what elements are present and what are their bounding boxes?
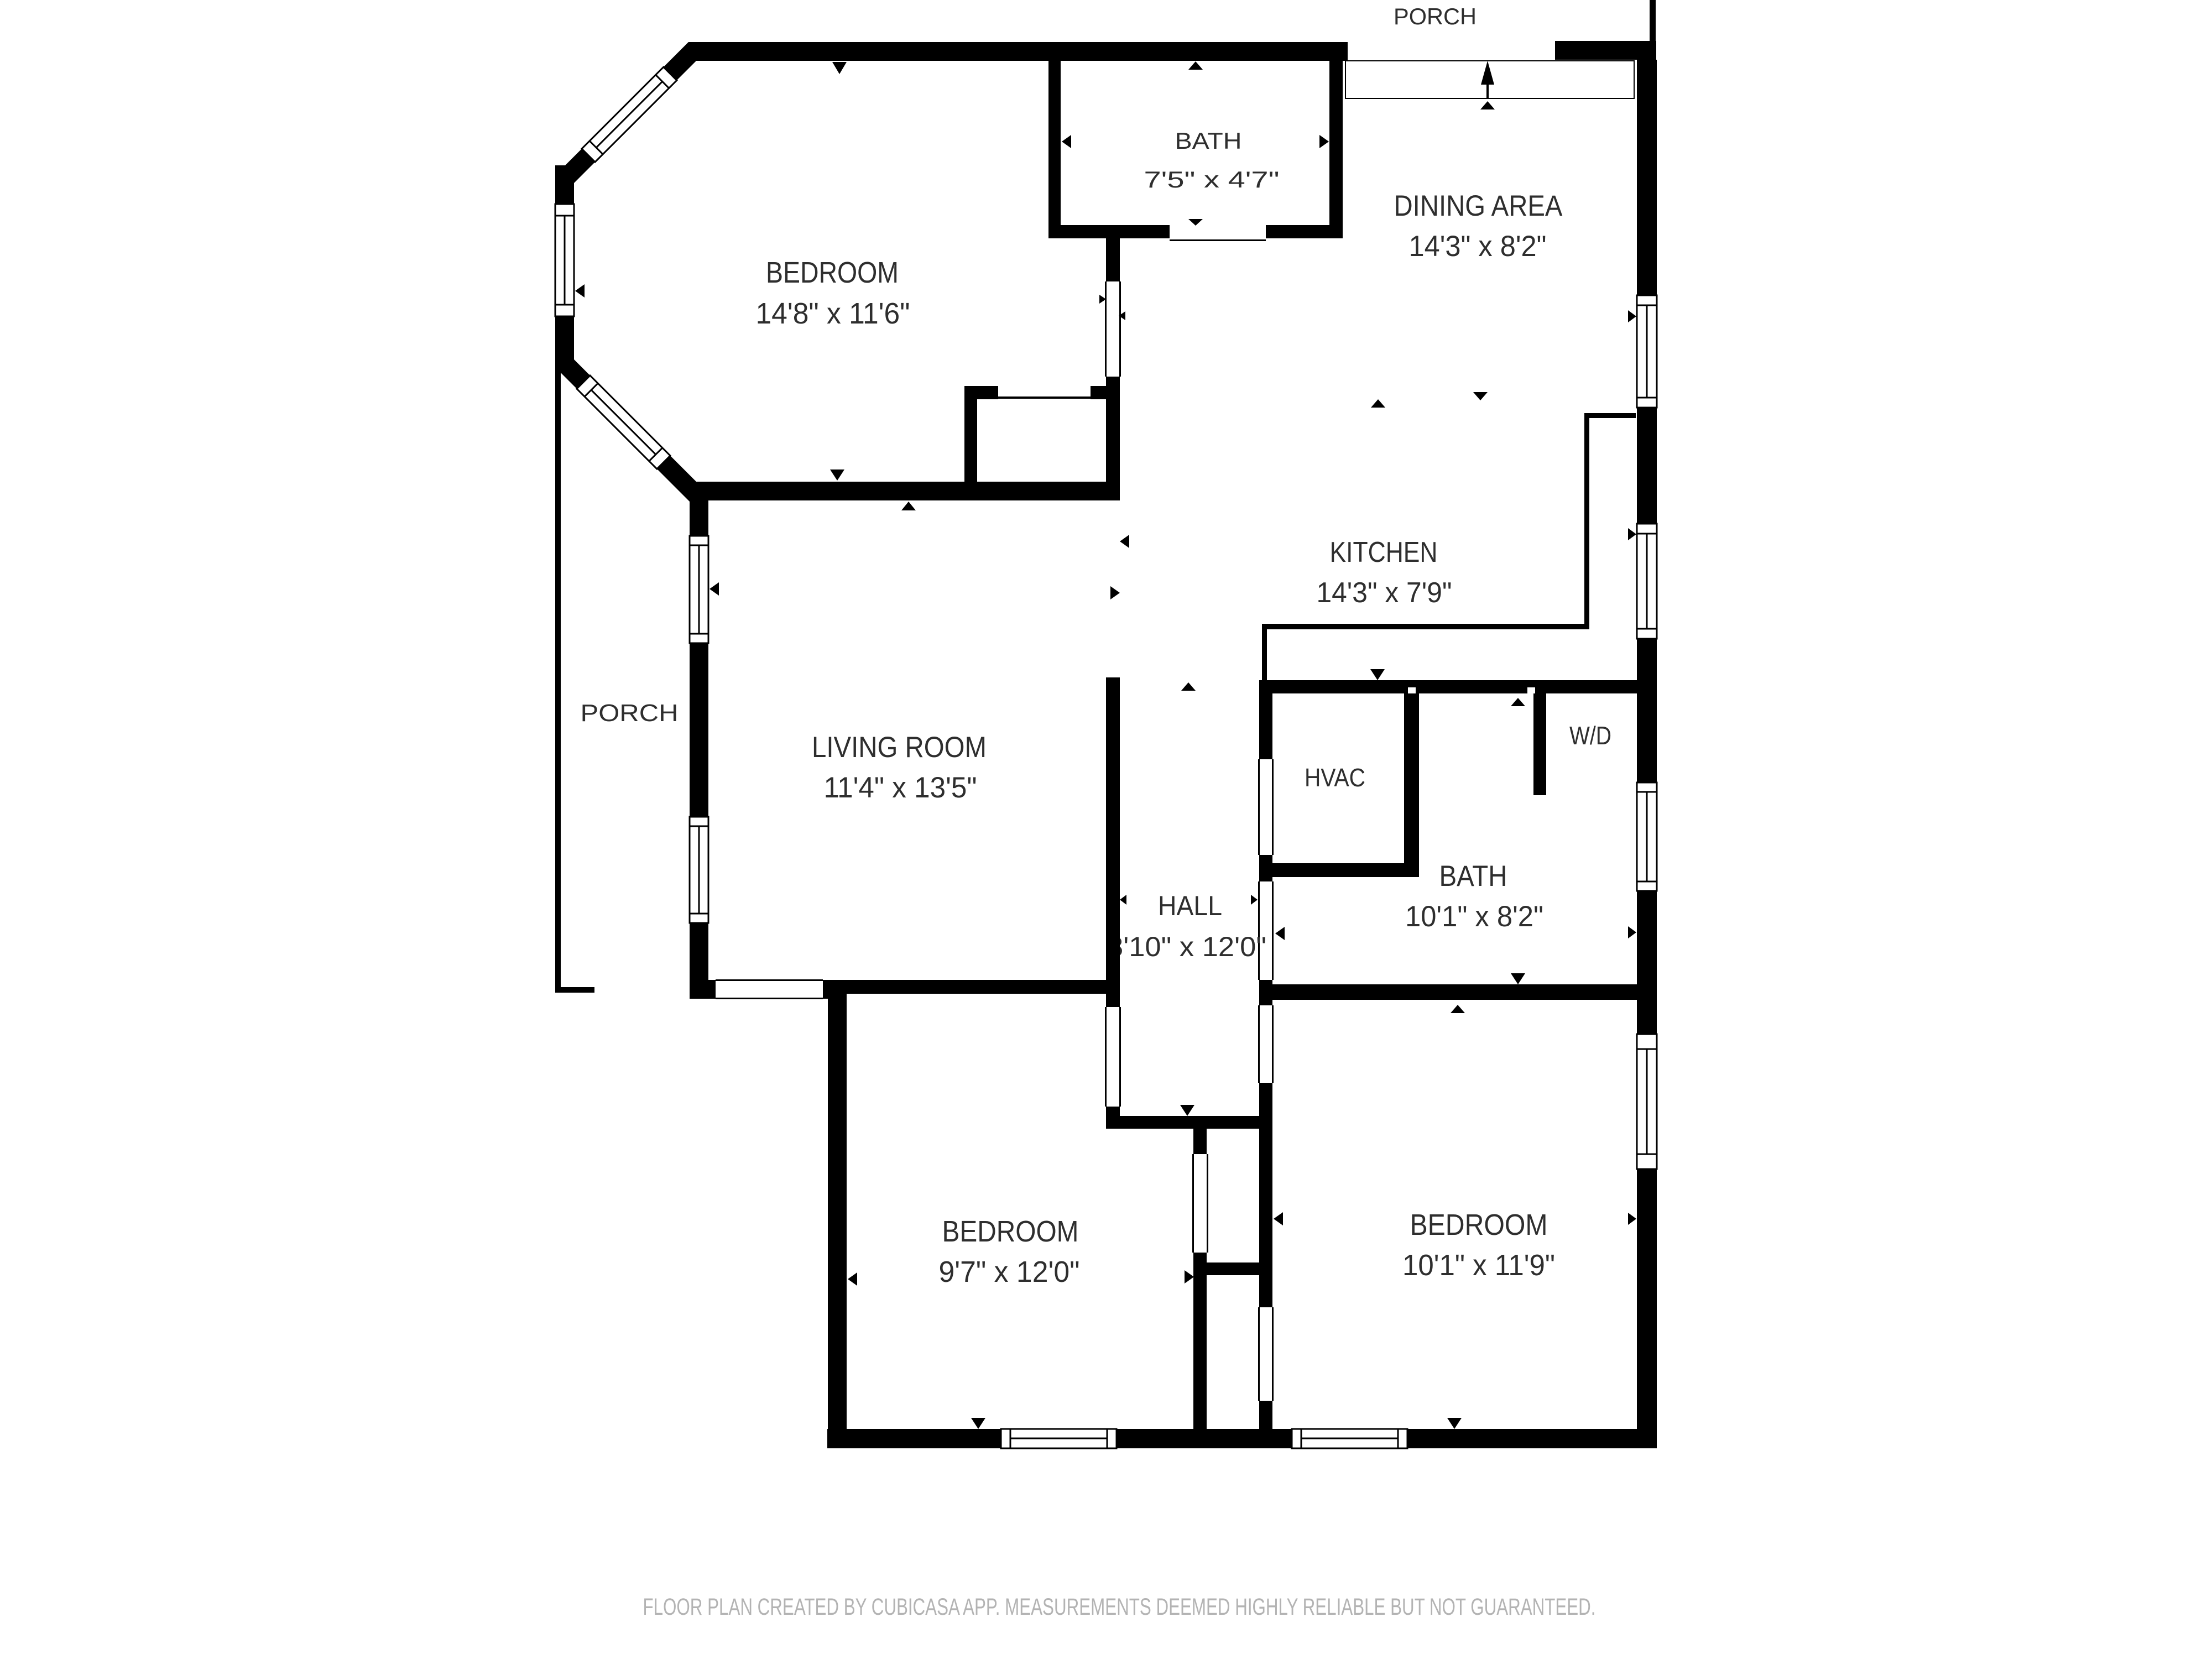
svg-text:FLOOR PLAN CREATED BY CUBICASA: FLOOR PLAN CREATED BY CUBICASA APP. MEAS… <box>643 1594 1596 1620</box>
svg-text:14'8" x 11'6": 14'8" x 11'6" <box>756 297 910 330</box>
svg-text:HALL: HALL <box>1158 890 1222 921</box>
svg-text:BEDROOM: BEDROOM <box>942 1215 1079 1248</box>
svg-text:BEDROOM: BEDROOM <box>1410 1208 1548 1241</box>
svg-text:11'4" x 13'5": 11'4" x 13'5" <box>824 771 977 804</box>
svg-text:14'3" x 8'2": 14'3" x 8'2" <box>1409 230 1547 263</box>
svg-text:14'3" x 7'9": 14'3" x 7'9" <box>1317 577 1452 609</box>
svg-text:BATH: BATH <box>1175 128 1242 154</box>
svg-text:7'5" x 4'7": 7'5" x 4'7" <box>1144 166 1280 192</box>
svg-text:10'1" x 8'2": 10'1" x 8'2" <box>1405 900 1543 933</box>
svg-text:W/D: W/D <box>1569 721 1611 750</box>
svg-text:10'1" x 11'9": 10'1" x 11'9" <box>1402 1249 1555 1282</box>
svg-text:9'7" x 12'0": 9'7" x 12'0" <box>939 1255 1080 1288</box>
svg-text:KITCHEN: KITCHEN <box>1330 536 1438 568</box>
svg-text:LIVING ROOM: LIVING ROOM <box>812 731 987 764</box>
svg-text:BATH: BATH <box>1439 860 1507 893</box>
svg-text:DINING AREA: DINING AREA <box>1394 190 1563 222</box>
svg-text:BEDROOM: BEDROOM <box>766 256 899 289</box>
svg-text:PORCH: PORCH <box>581 700 679 727</box>
svg-text:HVAC: HVAC <box>1305 763 1365 792</box>
svg-text:8'10" x 12'0": 8'10" x 12'0" <box>1107 931 1266 962</box>
svg-text:PORCH: PORCH <box>1394 3 1477 29</box>
